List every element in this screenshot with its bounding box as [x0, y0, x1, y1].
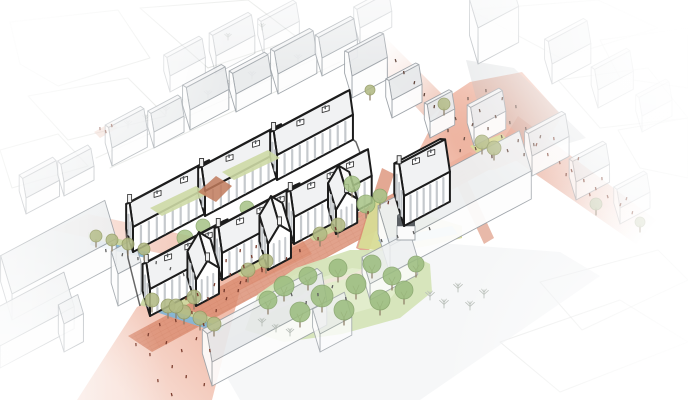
- person: [185, 297, 186, 300]
- street-tree: [313, 227, 327, 241]
- street-tree: [193, 311, 207, 325]
- person: [485, 89, 487, 92]
- person: [491, 155, 493, 158]
- pocket-park-tree: [357, 195, 375, 213]
- street-tree-faded: [635, 217, 645, 227]
- context-building: [58, 145, 94, 196]
- street-tree-faded: [590, 198, 602, 210]
- chimney: [205, 253, 209, 261]
- park-tree: [299, 267, 317, 285]
- person: [317, 293, 319, 296]
- person: [137, 257, 139, 260]
- person: [523, 153, 524, 156]
- person: [261, 269, 262, 272]
- chimney: [288, 183, 292, 191]
- street-tree: [169, 299, 183, 313]
- context-building: [58, 295, 83, 352]
- chimney: [216, 219, 220, 227]
- building-footprint: [618, 118, 688, 178]
- park-tree: [383, 267, 401, 285]
- chimney: [397, 156, 401, 164]
- park-tree: [274, 276, 294, 296]
- context-building: [469, 0, 518, 64]
- park-tree: [370, 290, 390, 310]
- person: [601, 177, 603, 180]
- person: [149, 353, 151, 356]
- axonometric-masterplan-svg: [0, 0, 688, 400]
- street-tree: [106, 234, 118, 246]
- street-tree: [259, 254, 273, 268]
- context-building: [636, 79, 672, 132]
- turret-body: [397, 226, 415, 240]
- street-tree: [365, 85, 375, 95]
- context-building: [105, 106, 147, 166]
- context-building: [545, 18, 591, 84]
- chimney: [128, 195, 132, 203]
- street-tree: [138, 243, 150, 255]
- chimney: [200, 159, 204, 167]
- person: [191, 311, 193, 314]
- person: [207, 297, 208, 300]
- park-tree: [346, 274, 366, 294]
- person: [447, 129, 448, 132]
- street-tree: [90, 230, 102, 242]
- pocket-park-tree: [373, 189, 387, 203]
- chimney: [144, 255, 148, 263]
- park-tree: [290, 302, 310, 322]
- chimney: [277, 217, 281, 225]
- person: [305, 301, 307, 304]
- park-tree: [408, 256, 424, 272]
- person: [135, 343, 137, 346]
- person: [467, 97, 468, 100]
- context-building: [19, 157, 59, 214]
- park-tree: [334, 300, 354, 320]
- person: [99, 127, 101, 130]
- street-tree: [487, 141, 501, 155]
- masterplan-illustration: [0, 0, 688, 400]
- street-tree: [331, 218, 345, 232]
- context-building: [591, 48, 633, 108]
- street-tree: [145, 293, 159, 307]
- street-tree: [207, 317, 221, 331]
- park-tree: [329, 259, 347, 277]
- park-tree: [363, 255, 381, 273]
- person: [487, 127, 488, 130]
- park-tree: [395, 281, 413, 299]
- building-footprint: [10, 10, 150, 86]
- street-tree: [241, 263, 255, 277]
- street-tree: [438, 98, 450, 110]
- street-tree: [187, 290, 201, 304]
- park-tree: [259, 291, 277, 309]
- pocket-park-tree: [344, 176, 360, 192]
- park-tree: [311, 285, 333, 307]
- chimney: [272, 123, 276, 131]
- person: [225, 259, 226, 262]
- person: [367, 211, 368, 214]
- street-tree: [122, 238, 134, 250]
- person: [317, 237, 318, 240]
- person: [565, 173, 567, 176]
